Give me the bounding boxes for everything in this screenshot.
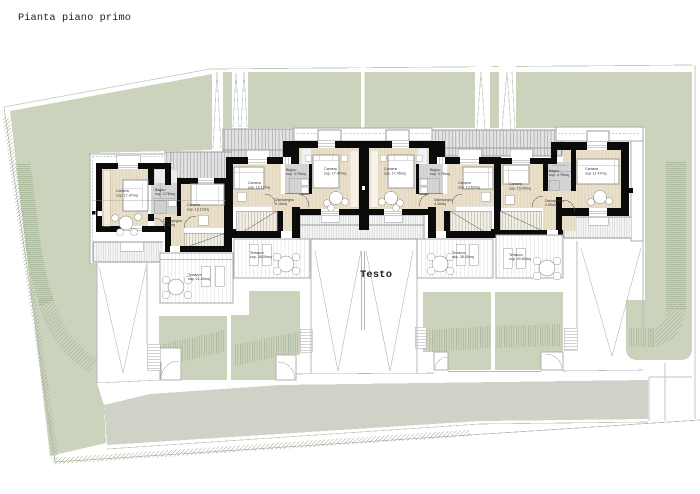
svg-text:sup. 15.05mq: sup. 15.05mq (509, 187, 531, 191)
svg-text:4.16mq: 4.16mq (275, 202, 287, 206)
svg-text:sup. 3.76mq: sup. 3.76mq (286, 172, 306, 176)
svg-text:sup. 13.12mq: sup. 13.12mq (248, 186, 270, 190)
svg-text:sup. 17.47mq: sup. 17.47mq (116, 194, 138, 198)
svg-text:4.16mq: 4.16mq (434, 202, 446, 206)
svg-text:sup. 38.05mq: sup. 38.05mq (452, 255, 474, 259)
svg-text:sup. 4.76mq: sup. 4.76mq (549, 173, 569, 177)
svg-text:sup. 13.62mq: sup. 13.62mq (458, 186, 480, 190)
svg-text:Camera: Camera (458, 181, 471, 185)
svg-text:sup. 38.05mq: sup. 38.05mq (250, 255, 272, 259)
svg-text:Camera: Camera (324, 167, 337, 171)
svg-text:Camera: Camera (509, 182, 522, 186)
svg-text:sup. 20.80mq: sup. 20.80mq (509, 257, 531, 261)
svg-text:Testo: Testo (360, 269, 392, 281)
svg-text:sup. 3.76mq: sup. 3.76mq (155, 192, 175, 196)
svg-text:Camera: Camera (585, 167, 598, 171)
svg-text:sup. 13.12mq: sup. 13.12mq (187, 208, 209, 212)
svg-text:Camera: Camera (384, 167, 397, 171)
svg-text:sup. 17.47mq: sup. 17.47mq (324, 172, 346, 176)
svg-text:4.46mq: 4.46mq (163, 223, 175, 227)
svg-text:4.50mq: 4.50mq (545, 203, 557, 207)
svg-text:Camera: Camera (116, 189, 129, 193)
svg-text:sup. 11.47mq: sup. 11.47mq (585, 172, 607, 176)
svg-text:Camera: Camera (248, 181, 261, 185)
svg-text:sup. 17.45mq: sup. 17.45mq (384, 172, 406, 176)
svg-text:sup. 3.76mq: sup. 3.76mq (430, 172, 450, 176)
svg-text:Pianta piano primo: Pianta piano primo (18, 12, 131, 24)
svg-text:sup. 21.84mq: sup. 21.84mq (188, 277, 210, 281)
svg-text:Camera: Camera (187, 203, 200, 207)
